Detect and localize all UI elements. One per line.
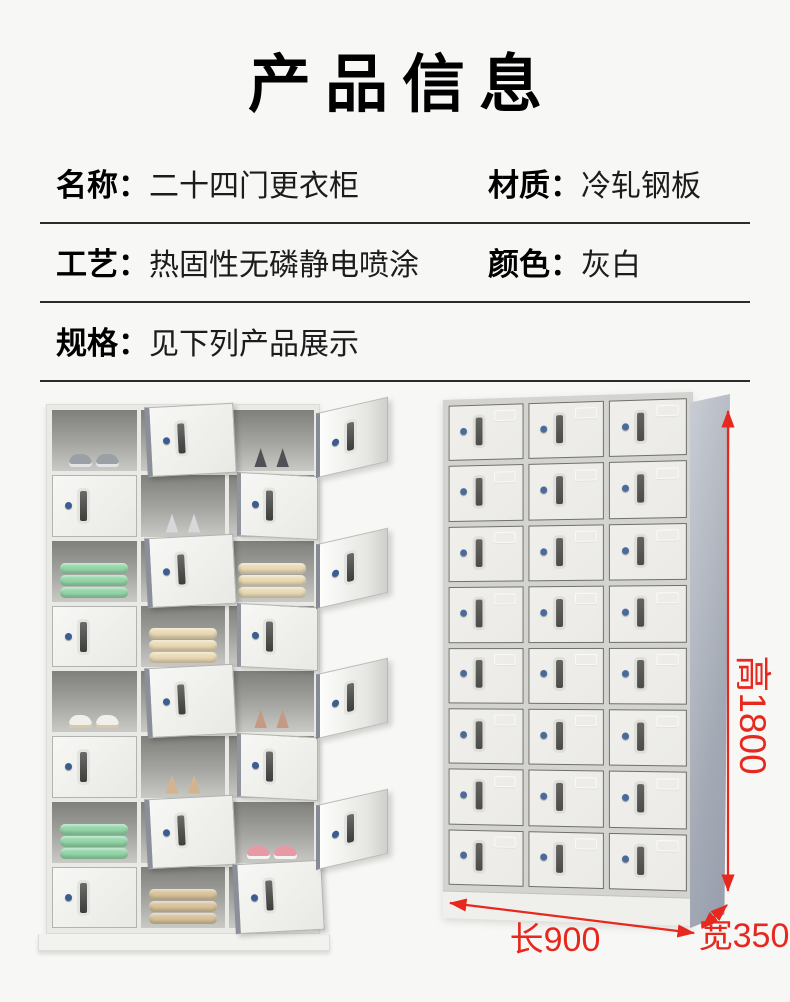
- door-handle: [556, 538, 563, 566]
- locker-door-closed: [52, 475, 137, 536]
- closed-locker-door: [449, 829, 524, 887]
- lock-icon: [460, 670, 467, 677]
- door-handle: [177, 684, 186, 714]
- lock-icon: [621, 608, 628, 615]
- spec-color-value: 灰白: [581, 240, 641, 284]
- towel: [238, 563, 306, 574]
- door-handle: [80, 883, 87, 913]
- shoe: [274, 846, 297, 859]
- page-title: 产品信息: [0, 0, 790, 125]
- door-handle: [556, 722, 563, 750]
- towel: [60, 563, 128, 574]
- spec-row-2: 工艺： 热固性无磷静电喷涂 颜色： 灰白: [40, 224, 750, 303]
- lock-icon: [332, 438, 339, 447]
- spec-row-1: 名称： 二十四门更衣柜 材质： 冷轧钢板: [40, 145, 750, 224]
- spec-name-label: 名称：: [56, 160, 149, 205]
- lock-icon: [621, 732, 628, 739]
- lock-icon: [540, 793, 547, 800]
- lock-icon: [252, 632, 259, 639]
- door-emboss: [575, 531, 597, 542]
- shoe: [69, 715, 92, 728]
- width-dimension-label: 宽350: [694, 916, 790, 956]
- spec-size: 规格： 见下列产品展示: [40, 318, 488, 363]
- spec-name: 名称： 二十四门更衣柜: [40, 160, 488, 205]
- closed-locker-door: [609, 833, 687, 892]
- locker-door-ajar: [237, 472, 318, 540]
- lock-icon: [332, 568, 339, 577]
- heel: [253, 709, 268, 728]
- length-dimension-label: 长900: [495, 920, 615, 960]
- spec-size-label: 规格：: [56, 318, 149, 363]
- spec-color: 颜色： 灰白: [488, 239, 750, 284]
- lock-icon: [621, 856, 628, 863]
- lock-icon: [460, 791, 467, 798]
- closed-locker-door: [609, 585, 687, 642]
- spec-row-3: 规格： 见下列产品展示: [40, 303, 750, 382]
- door-handle: [556, 415, 563, 443]
- lock-icon: [460, 549, 467, 556]
- closed-locker-door: [449, 403, 524, 461]
- spec-material-label: 材质：: [488, 160, 581, 205]
- lock-icon: [65, 763, 72, 770]
- locker-door-open: [144, 533, 236, 608]
- closed-locker-door: [449, 708, 524, 765]
- door-emboss: [657, 529, 679, 540]
- locker-door-flap: [316, 658, 388, 740]
- compartment-interior: [229, 802, 314, 863]
- door-emboss: [494, 836, 516, 847]
- door-handle: [556, 599, 563, 627]
- locker-cell-r5c2: [141, 671, 226, 732]
- lock-icon: [460, 852, 467, 859]
- locker-cell-r5c1: [52, 671, 137, 732]
- door-emboss: [494, 593, 516, 604]
- door-handle: [347, 552, 354, 582]
- heel: [186, 775, 201, 794]
- locker-cell-r8c2: [141, 867, 226, 928]
- door-handle: [177, 423, 186, 453]
- door-handle: [80, 752, 87, 782]
- locker-door-flap: [316, 397, 388, 479]
- compartment-interior: [229, 410, 314, 471]
- locker-cell-r3c1: [52, 541, 137, 602]
- beige-towels: [238, 562, 306, 598]
- green-towels: [60, 823, 128, 859]
- heel: [164, 775, 179, 794]
- open-locker-image: [38, 398, 408, 962]
- door-handle: [266, 880, 275, 910]
- door-emboss: [657, 467, 679, 479]
- towel: [238, 575, 306, 586]
- compartment-interior: [52, 410, 137, 471]
- towel: [60, 575, 128, 586]
- closed-locker-door: [528, 401, 604, 460]
- compartment-interior: [52, 541, 137, 602]
- door-handle: [556, 476, 563, 504]
- lock-icon: [162, 698, 169, 705]
- door-handle: [476, 600, 483, 628]
- lock-icon: [65, 894, 72, 901]
- door-handle: [347, 683, 354, 713]
- door-handle: [347, 422, 354, 452]
- door-handle: [80, 491, 87, 521]
- door-handle: [476, 478, 483, 506]
- compartment-interior: [141, 736, 226, 797]
- closed-locker-side-panel: [690, 394, 730, 928]
- locker-cell-r6c3: [229, 736, 314, 797]
- door-emboss: [575, 777, 597, 788]
- door-emboss: [657, 592, 679, 603]
- open-locker-grid: [46, 404, 320, 934]
- lock-icon: [540, 425, 547, 432]
- door-handle: [177, 554, 186, 584]
- closed-locker-door: [528, 709, 604, 766]
- lock-icon: [621, 485, 628, 492]
- lock-icon: [65, 633, 72, 640]
- locker-cell-r2c1: [52, 475, 137, 536]
- closed-locker-door: [528, 524, 604, 581]
- door-emboss: [575, 407, 597, 419]
- locker-cell-r7c2: [141, 802, 226, 863]
- locker-cell-r7c3: [229, 802, 314, 863]
- door-handle: [556, 844, 563, 872]
- door-emboss: [494, 471, 516, 482]
- door-handle: [266, 490, 273, 520]
- white-heels: [164, 514, 201, 533]
- closed-locker-door: [528, 462, 604, 520]
- lock-icon: [460, 731, 467, 738]
- closed-locker-door: [449, 587, 524, 643]
- door-emboss: [657, 778, 679, 789]
- closed-locker-door: [609, 523, 687, 581]
- door-handle: [80, 622, 87, 652]
- heel: [186, 514, 201, 533]
- locker-cell-r4c3: [229, 606, 314, 667]
- locker-door-open: [144, 664, 236, 739]
- door-emboss: [657, 405, 679, 417]
- towel: [149, 889, 217, 900]
- lock-icon: [332, 699, 339, 708]
- locker-cell-r1c2: [141, 410, 226, 471]
- brown-heels: [253, 709, 290, 728]
- heel: [253, 448, 268, 467]
- tan-heels: [164, 775, 201, 794]
- spec-material-value: 冷轧钢板: [581, 161, 701, 205]
- lock-icon: [162, 829, 169, 836]
- compartment-interior: [141, 867, 226, 928]
- door-emboss: [575, 715, 597, 726]
- locker-cell-r2c2: [141, 475, 226, 536]
- door-handle: [637, 784, 644, 812]
- locker-cell-r8c3: [229, 867, 314, 928]
- locker-cell-r6c1: [52, 736, 137, 797]
- heel: [275, 709, 290, 728]
- spec-process-label: 工艺：: [56, 239, 149, 284]
- door-emboss: [657, 840, 679, 852]
- locker-door-closed: [52, 606, 137, 667]
- gray-sneakers: [69, 454, 119, 467]
- locker-door-ajar: [237, 603, 318, 671]
- closed-locker-door: [528, 647, 604, 704]
- lock-icon: [251, 894, 258, 901]
- locker-cell-r7c1: [52, 802, 137, 863]
- spec-material: 材质： 冷轧钢板: [488, 160, 750, 205]
- door-handle: [476, 843, 483, 871]
- locker-cell-r1c3: [229, 410, 314, 471]
- spec-name-value: 二十四门更衣柜: [149, 161, 359, 205]
- lock-icon: [621, 794, 628, 801]
- door-handle: [637, 599, 644, 627]
- lock-icon: [621, 670, 628, 677]
- locker-cell-r8c1: [52, 867, 137, 928]
- spec-table: 名称： 二十四门更衣柜 材质： 冷轧钢板 工艺： 热固性无磷静电喷涂 颜色： 灰…: [40, 145, 750, 382]
- door-emboss: [575, 838, 597, 850]
- door-handle: [637, 475, 644, 503]
- lock-icon: [460, 428, 467, 435]
- lock-icon: [540, 487, 547, 494]
- door-handle: [476, 721, 483, 749]
- towel: [149, 628, 217, 639]
- door-emboss: [657, 716, 679, 727]
- door-emboss: [657, 654, 679, 665]
- door-emboss: [575, 654, 597, 665]
- lock-icon: [460, 488, 467, 495]
- shoe: [96, 454, 119, 467]
- green-towels: [60, 562, 128, 598]
- pink-sneakers: [247, 846, 297, 859]
- door-handle: [637, 660, 644, 688]
- compartment-interior: [52, 671, 137, 732]
- locker-cell-r6c2: [141, 736, 226, 797]
- lock-icon: [162, 568, 169, 575]
- locker-door-flap: [316, 527, 388, 609]
- door-emboss: [494, 715, 516, 726]
- door-emboss: [575, 592, 597, 603]
- closed-locker-door: [449, 464, 524, 521]
- lock-icon: [621, 547, 628, 554]
- locker-door-closed: [52, 736, 137, 797]
- door-handle: [347, 813, 354, 843]
- lock-icon: [162, 437, 169, 444]
- closed-locker-front: [443, 392, 693, 926]
- towel: [60, 824, 128, 835]
- open-locker-base: [38, 934, 330, 951]
- locker-door-flap: [316, 788, 388, 870]
- lock-icon: [621, 423, 628, 430]
- dark-heels: [253, 448, 290, 467]
- closed-locker-door: [609, 647, 687, 704]
- door-handle: [476, 539, 483, 567]
- spec-process-value: 热固性无磷静电喷涂: [149, 240, 419, 284]
- white-sneakers: [69, 715, 119, 728]
- lock-icon: [460, 609, 467, 616]
- spec-color-label: 颜色：: [488, 239, 581, 284]
- lock-icon: [252, 501, 259, 508]
- locker-door-closed: [52, 867, 137, 928]
- door-handle: [476, 417, 483, 445]
- closed-locker-door: [528, 770, 604, 828]
- spec-process: 工艺： 热固性无磷静电喷涂: [40, 239, 488, 284]
- towel: [238, 587, 306, 598]
- door-emboss: [494, 654, 516, 665]
- towel: [149, 640, 217, 651]
- lock-icon: [252, 762, 259, 769]
- lock-icon: [540, 670, 547, 677]
- towel: [60, 848, 128, 859]
- lock-icon: [540, 548, 547, 555]
- door-handle: [637, 537, 644, 565]
- closed-locker-door: [528, 831, 604, 889]
- door-emboss: [494, 532, 516, 543]
- towel: [60, 587, 128, 598]
- closed-locker-door: [449, 769, 524, 826]
- door-handle: [476, 660, 483, 688]
- locker-cell-r3c3: [229, 541, 314, 602]
- lock-icon: [65, 502, 72, 509]
- closed-locker-grid: [443, 392, 693, 898]
- height-dimension-label: 高1800: [732, 515, 772, 915]
- lock-icon: [332, 829, 339, 838]
- closed-locker-door: [449, 648, 524, 704]
- locker-cell-r4c1: [52, 606, 137, 667]
- locker-cell-r3c2: [141, 541, 226, 602]
- compartment-interior: [229, 671, 314, 732]
- lock-icon: [540, 731, 547, 738]
- door-emboss: [494, 776, 516, 787]
- door-handle: [266, 621, 273, 651]
- compartment-interior: [141, 475, 226, 536]
- closed-locker-door: [609, 771, 687, 829]
- locker-door-open: [144, 794, 236, 869]
- closed-locker-door: [449, 525, 524, 582]
- door-handle: [476, 782, 483, 810]
- locker-cell-r4c2: [141, 606, 226, 667]
- compartment-interior: [52, 802, 137, 863]
- towel: [60, 836, 128, 847]
- door-emboss: [494, 410, 516, 422]
- door-handle: [177, 815, 186, 845]
- locker-cell-r5c3: [229, 671, 314, 732]
- door-handle: [266, 751, 273, 781]
- door-handle: [556, 783, 563, 811]
- compartment-interior: [141, 606, 226, 667]
- spec-size-value: 见下列产品展示: [149, 319, 359, 363]
- door-handle: [637, 846, 644, 874]
- closed-locker-door: [609, 709, 687, 767]
- towel: [149, 652, 217, 663]
- shoe: [69, 454, 92, 467]
- heel: [164, 514, 179, 533]
- closed-locker-door: [609, 460, 687, 519]
- towel: [149, 901, 217, 912]
- door-emboss: [575, 469, 597, 481]
- closed-locker-door: [528, 586, 604, 643]
- lock-icon: [540, 854, 547, 861]
- locker-door-open: [233, 859, 325, 934]
- compartment-interior: [229, 541, 314, 602]
- heel: [275, 448, 290, 467]
- locker-cell-r2c3: [229, 475, 314, 536]
- locker-door-open: [144, 403, 236, 478]
- lock-icon: [540, 609, 547, 616]
- beige-towels: [149, 627, 217, 663]
- khaki-towels: [149, 888, 217, 924]
- door-handle: [637, 413, 644, 441]
- locker-door-ajar: [237, 733, 318, 801]
- closed-locker-door: [609, 398, 687, 457]
- door-handle: [556, 660, 563, 688]
- shoe: [247, 846, 270, 859]
- towel: [149, 913, 217, 924]
- locker-cell-r1c1: [52, 410, 137, 471]
- product-showcase: 高1800 长900 宽350: [0, 390, 790, 1002]
- door-handle: [637, 722, 644, 750]
- shoe: [96, 715, 119, 728]
